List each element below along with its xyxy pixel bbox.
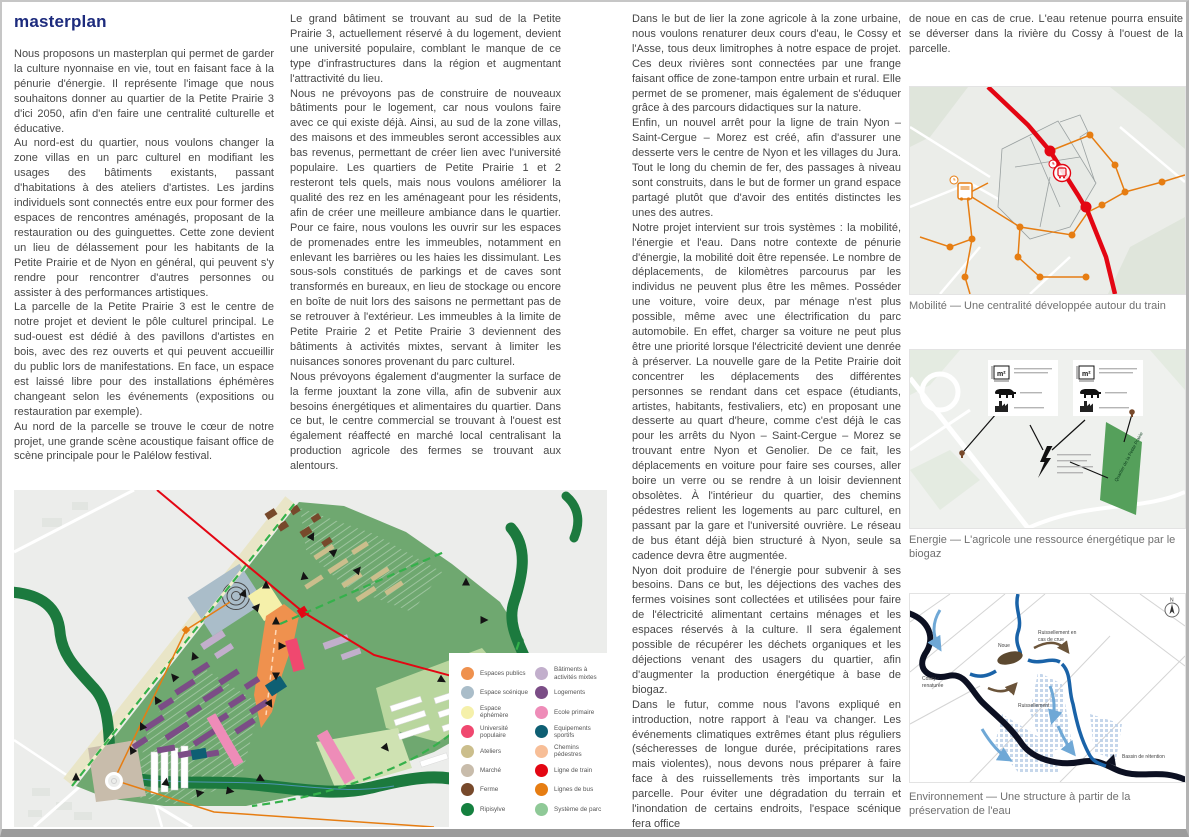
legend-item: Marché bbox=[461, 761, 529, 780]
legend-swatch bbox=[535, 783, 548, 796]
paragraph: Le grand bâtiment se trouvant au sud de … bbox=[290, 12, 561, 87]
legend-item: Espace scénique bbox=[461, 683, 529, 702]
legend-item: Espace éphémère bbox=[461, 703, 529, 722]
legend-swatch bbox=[461, 725, 474, 738]
cossy-label-1: Cossy - bbox=[922, 676, 939, 682]
legend-swatch bbox=[535, 745, 548, 758]
legend-item: Ecole primaire bbox=[535, 703, 603, 722]
text-column-4: de noue en cas de crue. L'eau retenue po… bbox=[909, 12, 1183, 57]
legend-label: Ripisylve bbox=[480, 806, 505, 813]
paragraph: Nyon doit produire de l'énergie pour sub… bbox=[632, 564, 901, 698]
legend-item: Equipements sportifs bbox=[535, 722, 603, 741]
energie-caption: Energie — L'agricole une ressource énerg… bbox=[909, 534, 1185, 561]
environnement-map: Noue Ruissellement en cas de crue Cossy … bbox=[909, 593, 1186, 783]
legend-column-left: Espaces publics Espace scénique Espace é… bbox=[461, 664, 529, 819]
paragraph: Dans le futur, comme nous l'avons expliq… bbox=[632, 698, 901, 832]
legend-swatch bbox=[535, 725, 548, 738]
legend-label: Bâtiments à activités mixtes bbox=[554, 666, 603, 680]
legend-swatch bbox=[461, 764, 474, 777]
annotation-line bbox=[1014, 407, 1044, 408]
legend-item: Ateliers bbox=[461, 741, 529, 760]
paragraph: Au nord-est du quartier, nous voulons ch… bbox=[14, 136, 274, 300]
legend-label: Marché bbox=[480, 767, 501, 774]
legend-item: Système de parc bbox=[535, 800, 603, 819]
legend-label: Ferme bbox=[480, 786, 498, 793]
legend-label: Ateliers bbox=[480, 748, 501, 755]
legend-label: Université populaire bbox=[480, 725, 529, 739]
document-page: masterplan Nous proposons un masterplan … bbox=[0, 0, 1189, 837]
paragraph: Nous proposons un masterplan qui permet … bbox=[14, 47, 274, 136]
paragraph: Nous prévoyons également d'augmenter la … bbox=[290, 370, 561, 474]
roundabout bbox=[107, 774, 122, 789]
legend-swatch bbox=[535, 706, 548, 719]
legend-item: Ferme bbox=[461, 780, 529, 799]
legend-label: Logements bbox=[554, 689, 585, 696]
legend-item: Lignes de bus bbox=[535, 780, 603, 799]
paragraph: Nous ne prévoyons pas de construire de n… bbox=[290, 87, 561, 370]
legend-label: Ecole primaire bbox=[554, 709, 594, 716]
legend-swatch bbox=[535, 686, 548, 699]
legend-swatch bbox=[461, 706, 474, 719]
legend-swatch bbox=[461, 783, 474, 796]
info-box-farm-left: m² bbox=[988, 360, 1058, 416]
legend-label: Lignes de bus bbox=[554, 786, 593, 793]
ruissellement-label: Ruissellement bbox=[1018, 703, 1050, 709]
noue-label: Noue bbox=[998, 643, 1010, 649]
cossy-label-2: renaturée bbox=[922, 683, 944, 689]
legend-label: Système de parc bbox=[554, 806, 601, 813]
legend-label: Espace éphémère bbox=[480, 705, 529, 719]
legend-item: Bâtiments à activités mixtes bbox=[535, 664, 603, 683]
legend-label: Chemins pédestres bbox=[554, 744, 603, 758]
bassin-label: Bassin de rétention bbox=[1122, 754, 1165, 760]
paragraph: Notre projet intervient sur trois systèm… bbox=[632, 221, 901, 564]
ruissellement-crue-label-2: cas de crue bbox=[1038, 637, 1064, 643]
legend-swatch bbox=[461, 686, 474, 699]
masterplan-map: Espaces publics Espace scénique Espace é… bbox=[14, 490, 607, 827]
paragraph: de noue en cas de crue. L'eau retenue po… bbox=[909, 12, 1183, 57]
text-column-3: Dans le but de lier la zone agricole à l… bbox=[632, 12, 901, 832]
legend-swatch bbox=[461, 803, 474, 816]
legend-label: Espaces publics bbox=[480, 670, 526, 677]
m2-icon: m² bbox=[992, 366, 1009, 381]
energie-map: Quartier de la Petite Prairie m² bbox=[909, 349, 1186, 529]
legend-swatch bbox=[535, 667, 548, 680]
legend-column-right: Bâtiments à activités mixtes Logements E… bbox=[535, 664, 603, 819]
mobilite-map bbox=[909, 86, 1186, 295]
north-label: N bbox=[1170, 598, 1174, 604]
annotation-line bbox=[1099, 407, 1129, 408]
m2-label: m² bbox=[1082, 371, 1091, 378]
info-box-farm-right: m² bbox=[1073, 360, 1143, 416]
ruissellement-crue-label-1: Ruissellement en bbox=[1038, 630, 1077, 636]
legend-item: Ripisylve bbox=[461, 800, 529, 819]
paragraph: La parcelle de la Petite Prairie 3 est l… bbox=[14, 300, 274, 419]
mobilite-caption: Mobilité — Une centralité développée aut… bbox=[909, 300, 1185, 314]
text-column-2: Le grand bâtiment se trouvant au sud de … bbox=[290, 12, 561, 474]
m2-icon: m² bbox=[1077, 366, 1094, 381]
paragraph: Au nord de la parcelle se trouve le cœur… bbox=[14, 420, 274, 465]
legend-swatch bbox=[535, 764, 548, 777]
marche-area bbox=[88, 740, 146, 802]
annotation-line bbox=[1105, 392, 1127, 393]
legend-swatch bbox=[461, 745, 474, 758]
legend-item: Ligne de train bbox=[535, 761, 603, 780]
m2-label: m² bbox=[997, 371, 1006, 378]
legend-item: Chemins pédestres bbox=[535, 741, 603, 760]
legend-label: Equipements sportifs bbox=[554, 725, 603, 739]
paragraph: Dans le but de lier la zone agricole à l… bbox=[632, 12, 901, 116]
annotation-line bbox=[1020, 392, 1042, 393]
legend-item: Logements bbox=[535, 683, 603, 702]
legend-item: Université populaire bbox=[461, 722, 529, 741]
legend-label: Espace scénique bbox=[480, 689, 528, 696]
page-title: masterplan bbox=[14, 12, 107, 32]
legend-item: Espaces publics bbox=[461, 664, 529, 683]
legend-swatch bbox=[535, 803, 548, 816]
text-column-1: Nous proposons un masterplan qui permet … bbox=[14, 47, 274, 464]
environnement-caption: Environnement — Une structure à partir d… bbox=[909, 791, 1185, 818]
legend-swatch bbox=[461, 667, 474, 680]
paragraph: Enfin, un nouvel arrêt pour la ligne de … bbox=[632, 116, 901, 220]
map-legend: Espaces publics Espace scénique Espace é… bbox=[449, 653, 607, 827]
legend-label: Ligne de train bbox=[554, 767, 592, 774]
